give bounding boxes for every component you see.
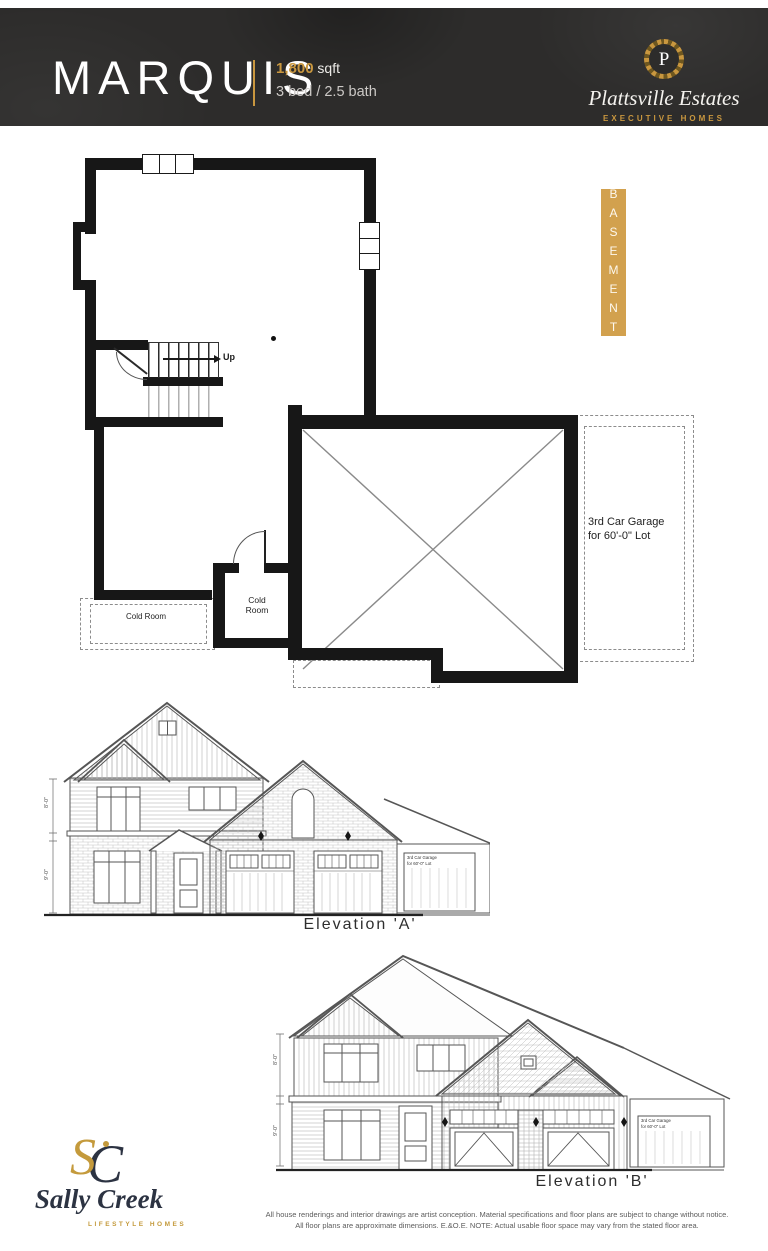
elevation-a-dim-upper: 8'-0" (44, 797, 50, 808)
wall-segment (143, 377, 223, 386)
elevation-b-drawing: 3rd Car Garage for 60'-0" Lot 8'-0" 9'-0… (272, 952, 732, 1192)
elevation-a-label: Elevation 'A' (302, 916, 418, 934)
sally-creek-tagline: LIFESTYLE HOMES (88, 1221, 186, 1228)
elevation-b-dim-upper: 8'-0" (273, 1054, 279, 1065)
stairs-upper-flight (148, 342, 219, 378)
wall-segment (364, 158, 376, 418)
builder-tagline: EXECUTIVE HOMES (570, 114, 758, 123)
header-bar: MARQUIS 1,800 sqft 3 bed / 2.5 bath P Pl… (0, 8, 768, 126)
wall-segment (96, 340, 148, 350)
wall-segment (288, 415, 578, 429)
disclaimer-line1: All house renderings and interior drawin… (257, 1210, 737, 1221)
elevation-a-garage-note-line2: for 60'-0" Lot (407, 861, 432, 866)
window-symbol (142, 154, 194, 174)
cold-room-small-line2: Room (232, 605, 282, 615)
sally-creek-monogram-s: S (70, 1128, 96, 1187)
sally-creek-monogram-dot-icon (103, 1141, 109, 1147)
floor-plan: Up Cold Room Cold Room 3rd Car Garage fo… (0, 140, 768, 700)
bed-bath: 3 bed / 2.5 bath (276, 84, 377, 100)
wall-segment (85, 284, 96, 430)
header-divider (253, 60, 255, 106)
disclaimer: All house renderings and interior drawin… (257, 1210, 737, 1231)
builder-monogram: P (644, 39, 684, 79)
wall-segment (213, 563, 225, 648)
wall-segment (564, 415, 578, 683)
elevation-b-label: Elevation 'B' (534, 1173, 650, 1191)
third-garage-note-line2: for 60'-0" Lot (588, 529, 664, 543)
elevation-a-dim-lower: 9'-0" (44, 869, 50, 880)
window-symbol (359, 222, 380, 270)
wall-segment (288, 648, 443, 660)
builder-name: Plattsville Estates (570, 86, 758, 111)
up-label: Up (223, 352, 235, 362)
third-garage-note: 3rd Car Garage for 60'-0" Lot (588, 515, 664, 543)
elevation-a-garage-note-line1: 3rd Car Garage (407, 855, 437, 860)
elevation-a-drawing: 3rd Car Garage for 60'-0" Lot 8'-0" 9'-0… (40, 700, 490, 940)
wall-segment (85, 158, 376, 170)
stairs-lower-flight (148, 386, 218, 417)
area-unit: sqft (314, 60, 340, 76)
elevation-b-dim-lower: 9'-0" (273, 1125, 279, 1136)
wall-segment (288, 405, 302, 660)
flyer-page: MARQUIS 1,800 sqft 3 bed / 2.5 bath P Pl… (0, 0, 768, 1251)
area-value: 1,800 (276, 60, 314, 77)
wall-segment (94, 590, 212, 600)
cold-room-label: Cold Room (106, 612, 186, 621)
wall-segment (96, 417, 223, 427)
elevation-b-garage-note-line1: 3rd Car Garage (641, 1118, 671, 1123)
up-arrow (163, 358, 215, 360)
elevation-b-garage-note-line2: for 60'-0" Lot (641, 1124, 666, 1129)
up-arrowhead-icon (214, 355, 221, 363)
cold-room-small-line1: Cold (232, 595, 282, 605)
cold-room-small-label: Cold Room (232, 595, 282, 615)
wall-segment (431, 671, 578, 683)
disclaimer-line2: All floor plans are approximate dimensio… (257, 1221, 737, 1232)
area-line: 1,800 sqft (276, 60, 340, 77)
wall-segment (94, 427, 104, 600)
support-column-dot (271, 336, 276, 341)
third-garage-note-line1: 3rd Car Garage (588, 515, 664, 529)
